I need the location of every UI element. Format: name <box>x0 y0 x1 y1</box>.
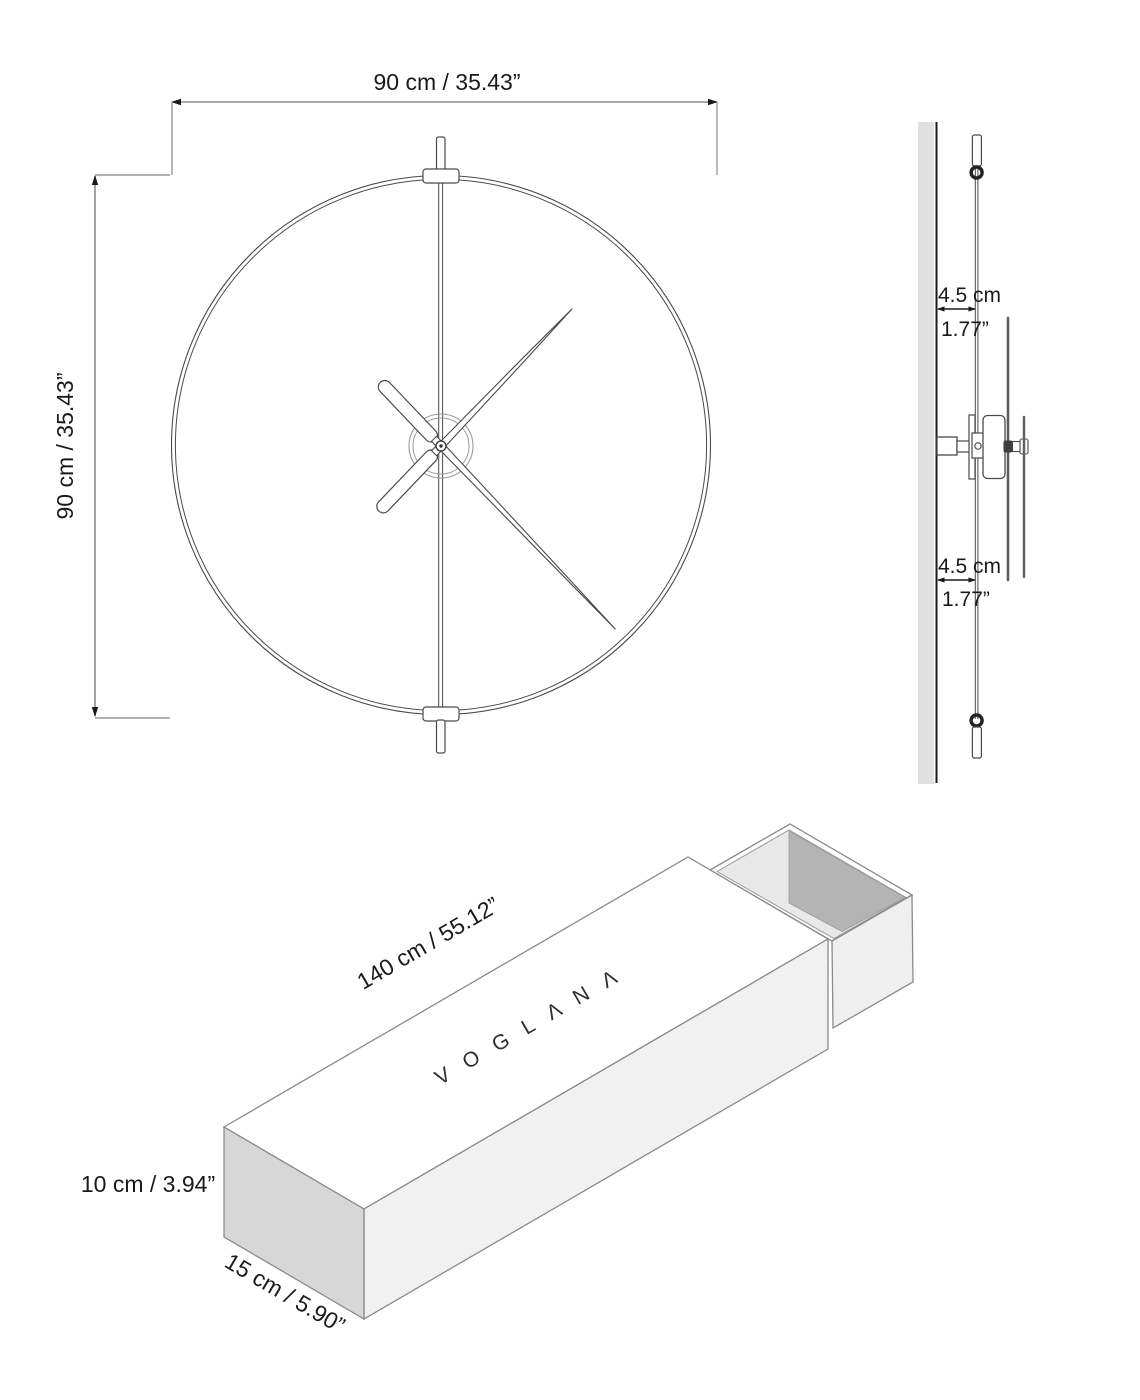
box-sleeve: V O G L Λ N Λ <box>224 857 828 1319</box>
profile-rod-bottom-cap <box>972 727 981 758</box>
rod-bottom-cap <box>437 720 446 753</box>
hub-shaft-profile <box>1013 442 1021 452</box>
center-hub-dot <box>439 444 442 447</box>
bracket-shaft <box>957 441 970 452</box>
profile-top-clamp-ring <box>971 167 982 178</box>
side-view: 4.5 cm 1.77” 4.5 cm 1.77” <box>918 122 1028 784</box>
offset-top-in-label: 1.77” <box>941 318 989 341</box>
box-view: V O G L Λ N Λ 140 cm / 55.12” 10 cm / 3.… <box>81 824 913 1338</box>
profile-bottom-clamp-ring <box>971 715 982 726</box>
offset-top-arrowhead-left <box>937 306 944 311</box>
width-label: 90 cm / 35.43” <box>373 69 520 95</box>
ring-top-clamp <box>423 169 459 183</box>
minute-hand-needle <box>431 436 618 631</box>
mount-screw <box>975 443 981 449</box>
dimension-offset-bottom: 4.5 cm 1.77” <box>937 555 1001 611</box>
box-height-label: 10 cm / 3.94” <box>81 1171 215 1197</box>
hour-hand-loop <box>374 447 440 515</box>
wall-bracket-arm <box>937 437 957 455</box>
minute-hand <box>376 378 621 634</box>
rod-top-cap <box>437 137 446 170</box>
offset-bottom-arrowhead-left <box>937 577 944 582</box>
offset-top-cm-label: 4.5 cm <box>938 284 1001 307</box>
minute-hand-loop <box>376 378 441 445</box>
hand-hub-profile <box>1004 441 1013 453</box>
dimension-height: 90 cm / 35.43” <box>52 175 170 718</box>
dimension-offset-top: 4.5 cm 1.77” <box>937 284 1001 341</box>
offset-top-arrowhead-right <box>969 306 976 311</box>
ring-bottom-clamp <box>423 707 459 721</box>
offset-bottom-in-label: 1.77” <box>942 588 990 611</box>
technical-drawing-page: 90 cm / 35.43” 90 cm / 35.43” <box>0 0 1140 1400</box>
profile-rod-top-cap <box>972 135 981 166</box>
drawing-canvas: 90 cm / 35.43” 90 cm / 35.43” <box>0 0 1140 1400</box>
wall-strip <box>918 122 934 784</box>
clock-front <box>172 137 711 753</box>
offset-bottom-arrowhead-right <box>969 577 976 582</box>
arrowhead-bottom <box>92 707 98 717</box>
movement-body <box>983 416 1005 479</box>
front-view: 90 cm / 35.43” 90 cm / 35.43” <box>52 69 718 753</box>
movement-assembly <box>937 318 1028 580</box>
offset-bottom-cm-label: 4.5 cm <box>938 555 1001 578</box>
height-label: 90 cm / 35.43” <box>52 372 78 519</box>
hour-hand-needle <box>431 306 574 456</box>
arrowhead-top <box>92 175 98 185</box>
